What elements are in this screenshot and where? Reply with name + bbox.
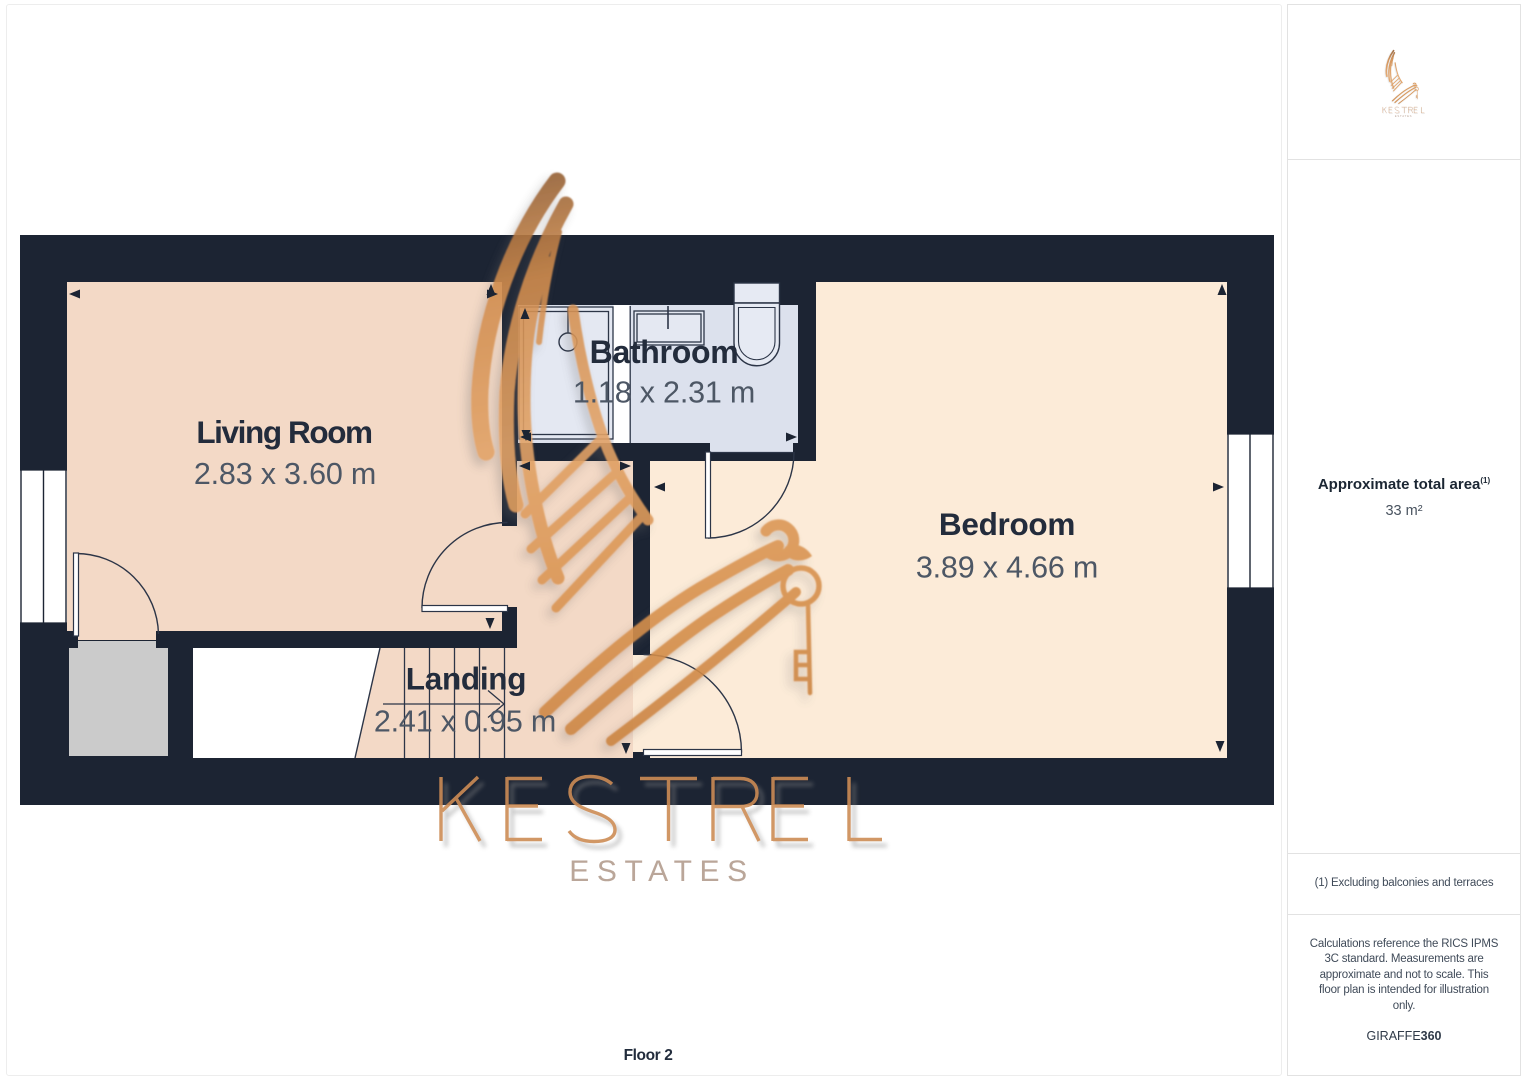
svg-text:2.41 x 0.95 m: 2.41 x 0.95 m (374, 705, 556, 739)
svg-text:Living Room: Living Room (196, 414, 372, 450)
svg-text:1.18 x 2.31 m: 1.18 x 2.31 m (573, 376, 755, 410)
svg-text:3.89 x 4.66 m: 3.89 x 4.66 m (916, 551, 1098, 585)
svg-text:Bedroom: Bedroom (939, 506, 1075, 542)
svg-text:2.83 x 3.60 m: 2.83 x 3.60 m (194, 457, 376, 491)
svg-text:ESTATES: ESTATES (569, 855, 754, 888)
svg-text:Bathroom: Bathroom (590, 334, 739, 370)
svg-text:Landing: Landing (406, 661, 526, 697)
